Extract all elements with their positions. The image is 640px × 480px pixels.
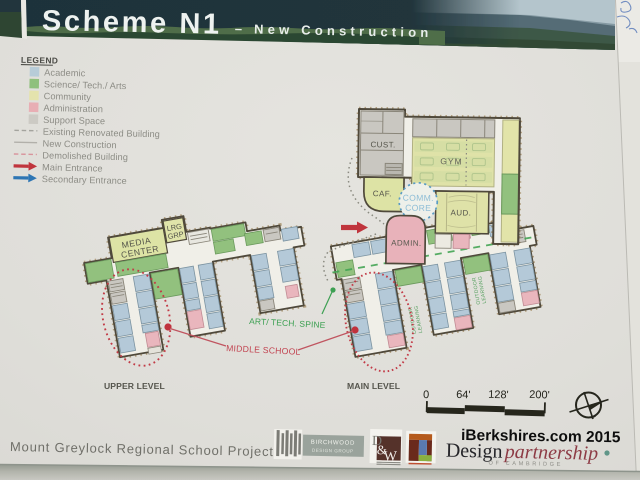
svg-text:0: 0 — [423, 389, 429, 401]
svg-text:Scheme N1: Scheme N1 — [42, 5, 222, 41]
svg-text:Secondary Entrance: Secondary Entrance — [42, 174, 127, 186]
svg-text:CAF.: CAF. — [373, 189, 392, 198]
svg-text:AUD.: AUD. — [451, 208, 472, 217]
svg-text:Community: Community — [44, 91, 92, 102]
svg-text:128': 128' — [488, 389, 509, 402]
svg-text:Administration: Administration — [43, 103, 103, 114]
svg-text:UPPER LEVEL: UPPER LEVEL — [104, 381, 165, 391]
svg-text:DESIGN GROUP: DESIGN GROUP — [312, 448, 354, 454]
svg-text:iBerkshires.com 2015: iBerkshires.com 2015 — [461, 427, 621, 446]
svg-text:Main Entrance: Main Entrance — [42, 162, 103, 173]
svg-text:BIRCHWOOD: BIRCHWOOD — [311, 440, 355, 447]
svg-text:Demolished Building: Demolished Building — [42, 150, 128, 162]
svg-text:Academic: Academic — [44, 67, 86, 78]
svg-text:Science/ Tech./ Arts: Science/ Tech./ Arts — [44, 79, 127, 91]
svg-text:New Construction: New Construction — [42, 139, 116, 151]
svg-text:CUST.: CUST. — [370, 140, 395, 149]
svg-text:COMM.: COMM. — [403, 193, 434, 203]
svg-text:ADMIN.: ADMIN. — [391, 238, 422, 247]
svg-text:200': 200' — [529, 389, 550, 402]
svg-text:MAIN LEVEL: MAIN LEVEL — [347, 381, 400, 391]
svg-text:Support Space: Support Space — [43, 115, 105, 126]
svg-text:64': 64' — [456, 389, 471, 401]
svg-text:LEGEND: LEGEND — [21, 55, 59, 66]
svg-text:GYM: GYM — [440, 156, 463, 166]
svg-text:CORE: CORE — [405, 203, 431, 213]
